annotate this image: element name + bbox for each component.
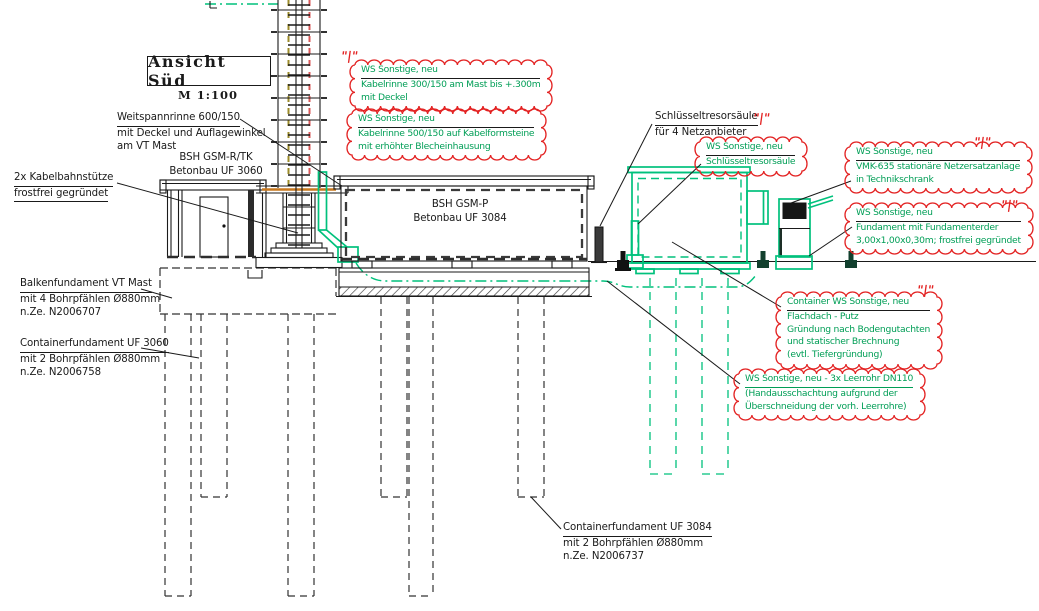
annotation-line: WS Sonstige, neu bbox=[361, 64, 540, 79]
annotation-container-neu: Container WS Sonstige, neu Flachdach - P… bbox=[779, 292, 939, 366]
label-line: n.Ze. N2006737 bbox=[563, 550, 712, 564]
annotation-schluesseltresorsaeule-neu: WS Sonstige, neu Schlüsseltresorsäule bbox=[698, 137, 804, 173]
schluesseltresorsaeule-existing bbox=[591, 227, 607, 263]
annotation-leerrohr: WS Sonstige, neu - 3x Leerrohr DN110 (Ha… bbox=[737, 369, 922, 417]
label-line: n.Ze. N2006707 bbox=[20, 306, 160, 320]
label-line: Schlüsseltresorsäule bbox=[655, 110, 758, 126]
bore-piles-new bbox=[650, 278, 728, 474]
label-line: BSH GSM-P bbox=[400, 198, 520, 212]
label-kabelbahnstuetze: 2x Kabelbahnstütze frostfrei gegründet bbox=[14, 171, 113, 202]
annotation-line: WS Sonstige, neu - 3x Leerrohr DN110 bbox=[745, 373, 913, 388]
label-weitspannrinne: Weitspannrinne 600/150 mit Deckel und Au… bbox=[117, 111, 265, 154]
label-line: mit 2 Bohrpfählen Ø880mm bbox=[20, 353, 169, 367]
container-side-unit bbox=[747, 191, 768, 224]
revision-marker: "|" bbox=[1000, 198, 1019, 212]
revision-marker: "|" bbox=[916, 283, 935, 297]
label-line: mit Deckel und Auflagewinkel bbox=[117, 127, 265, 141]
label-line: Containerfundament UF 3084 bbox=[563, 521, 712, 537]
label-line: mit 4 Bohrpfählen Ø880mm bbox=[20, 293, 160, 307]
vt-mast bbox=[256, 0, 342, 268]
annotation-line: Container WS Sonstige, neu bbox=[787, 296, 930, 311]
cabinet-vent-panel bbox=[783, 203, 807, 220]
annotation-line: 3,00x1,00x0,30m; frostfrei gegründet bbox=[856, 235, 1021, 248]
annotation-kabelrinne-500: WS Sonstige, neu Kabelrinne 500/150 auf … bbox=[350, 109, 543, 157]
annotation-line: (Handausschachtung aufgrund der bbox=[745, 388, 913, 401]
annotation-line: WS Sonstige, neu bbox=[706, 141, 795, 156]
label-line: n.Ze. N2006758 bbox=[20, 366, 169, 380]
view-scale: M 1:100 bbox=[147, 88, 269, 102]
annotation-line: Kabelrinne 500/150 auf Kabelformsteine bbox=[358, 128, 534, 141]
label-line: Betonbau UF 3084 bbox=[400, 212, 520, 226]
label-line: Betonbau UF 3060 bbox=[166, 165, 266, 179]
label-bsh-gsm-p: BSH GSM-P Betonbau UF 3084 bbox=[400, 198, 520, 225]
annotation-line: WS Sonstige, neu bbox=[856, 146, 1020, 161]
annotation-line: Gründung nach Bodengutachten bbox=[787, 324, 930, 337]
annotation-line: (evtl. Tiefergründung) bbox=[787, 349, 930, 362]
label-containerfundament-3084: Containerfundament UF 3084 mit 2 Bohrpfä… bbox=[563, 521, 712, 564]
door-handle bbox=[222, 224, 225, 227]
annotation-netzersatzanlage: WS Sonstige, neu VMK-635 stationäre Netz… bbox=[848, 142, 1029, 190]
label-schluesseltresorsaeule: Schlüsseltresorsäule für 4 Netzanbieter bbox=[655, 110, 758, 139]
label-bsh-gsm-rtk: BSH GSM-R/TK Betonbau UF 3060 bbox=[166, 151, 266, 178]
mast-pedestal bbox=[256, 258, 342, 268]
drawing-sheet: Ansicht Süd M 1:100 Weitspannrinne 600/1… bbox=[0, 0, 1039, 611]
label-line: 2x Kabelbahnstütze bbox=[14, 171, 113, 187]
label-balkenfundament: Balkenfundament VT Mast mit 4 Bohrpfähle… bbox=[20, 277, 160, 320]
annotation-line: WS Sonstige, neu bbox=[856, 207, 1021, 222]
annotation-line: Überschneidung der vorh. Leerrohre) bbox=[745, 401, 913, 414]
label-line: Containerfundament UF 3060 bbox=[20, 337, 169, 353]
label-line: BSH GSM-R/TK bbox=[166, 151, 266, 165]
building-gsm-rtk bbox=[160, 180, 266, 257]
leerrohr-trench-line bbox=[356, 263, 757, 287]
label-line: frostfrei gegründet bbox=[14, 187, 108, 203]
annotation-kabelrinne-300: WS Sonstige, neu Kabelrinne 300/150 am M… bbox=[353, 60, 549, 108]
annotation-line: mit erhöhter Blecheinhausung bbox=[358, 141, 534, 154]
revision-marker: "|" bbox=[752, 111, 771, 125]
label-containerfundament-3060: Containerfundament UF 3060 mit 2 Bohrpfä… bbox=[20, 337, 169, 380]
annotation-line: und statischer Brechnung bbox=[787, 336, 930, 349]
technikschrank bbox=[776, 196, 833, 269]
annotation-line: mit Deckel bbox=[361, 92, 540, 105]
revision-marker: "|" bbox=[340, 49, 359, 63]
annotation-line: Schlüsseltresorsäule bbox=[706, 156, 795, 169]
cabinet-foundation bbox=[776, 256, 812, 269]
bore-piles bbox=[165, 297, 544, 596]
annotation-line: Fundament mit Fundamenterder bbox=[856, 222, 1021, 235]
label-line: Balkenfundament VT Mast bbox=[20, 277, 152, 293]
view-title-text: Ansicht Süd bbox=[148, 52, 270, 90]
view-title: Ansicht Süd bbox=[147, 56, 271, 86]
revision-marker: "|" bbox=[973, 135, 992, 149]
annotation-line: Kabelrinne 300/150 am Mast bis +.300m bbox=[361, 79, 540, 92]
annotation-line: in Technikschrank bbox=[856, 174, 1020, 187]
top-reference-line bbox=[205, 1, 278, 8]
annotation-line: Flachdach - Putz bbox=[787, 311, 930, 324]
label-line: Weitspannrinne 600/150 bbox=[117, 111, 240, 127]
annotation-line: WS Sonstige, neu bbox=[358, 113, 534, 128]
label-line: mit 2 Bohrpfählen Ø880mm bbox=[563, 537, 712, 551]
annotation-line: VMK-635 stationäre Netzersatzanlage bbox=[856, 161, 1020, 174]
foundation-uf3060-vtmast bbox=[160, 268, 336, 314]
